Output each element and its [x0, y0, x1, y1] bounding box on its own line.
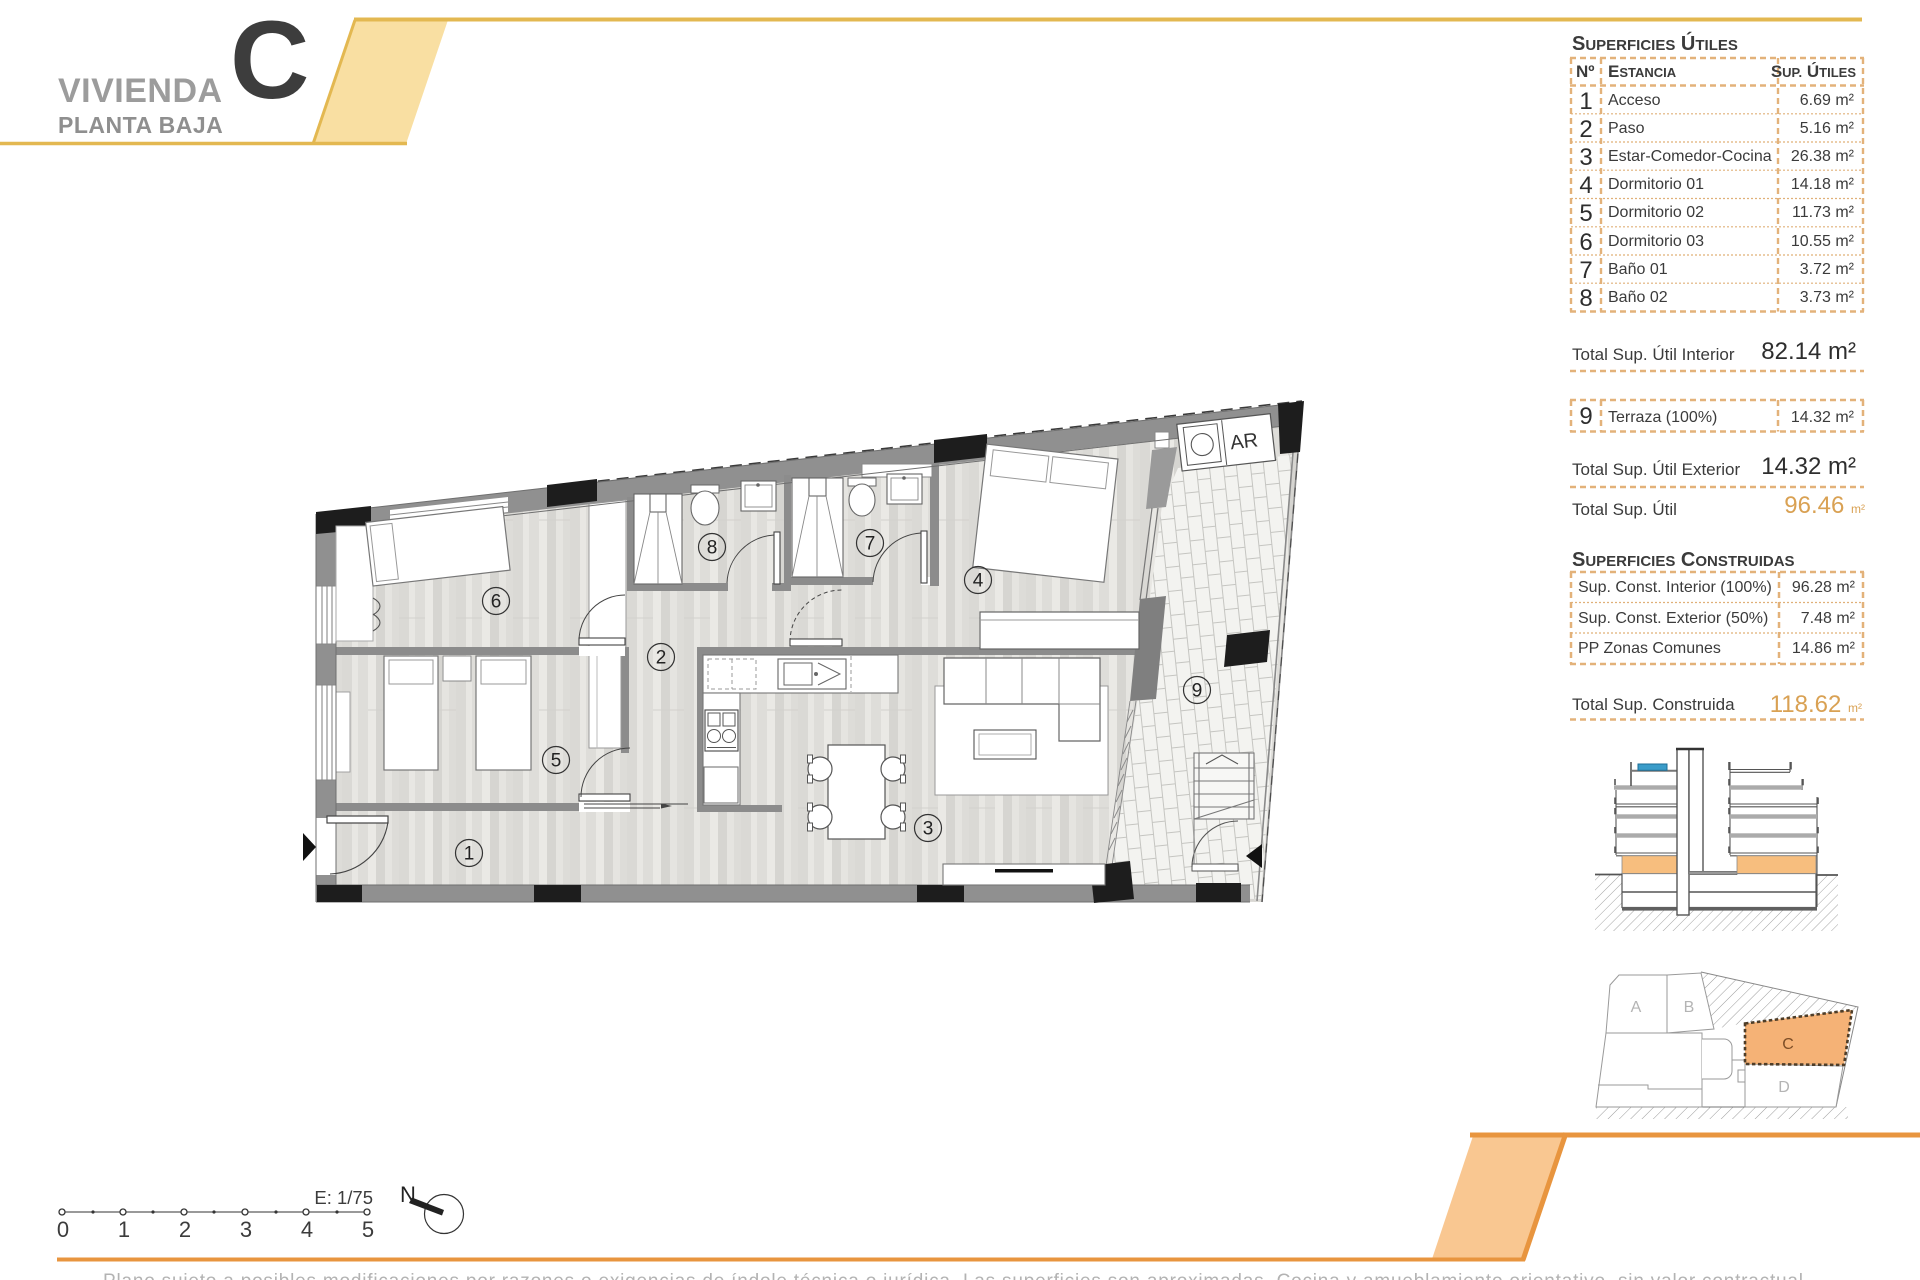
svg-text:N: N — [400, 1182, 416, 1207]
svg-text:8: 8 — [707, 538, 718, 559]
svg-text:6: 6 — [491, 592, 502, 613]
svg-text:1: 1 — [118, 1217, 130, 1242]
svg-text:1: 1 — [464, 844, 475, 865]
svg-text:A: A — [1631, 999, 1642, 1016]
svg-text:AR: AR — [1229, 429, 1259, 454]
svg-text:4: 4 — [973, 571, 984, 592]
svg-text:5: 5 — [362, 1217, 374, 1242]
svg-text:E: 1/75: E: 1/75 — [314, 1187, 373, 1208]
svg-text:2: 2 — [179, 1217, 191, 1242]
svg-text:4: 4 — [301, 1217, 313, 1242]
svg-text:3: 3 — [240, 1217, 252, 1242]
svg-text:9: 9 — [1192, 681, 1203, 702]
svg-text:D: D — [1778, 1079, 1790, 1096]
svg-text:3: 3 — [923, 819, 934, 840]
svg-text:7: 7 — [865, 534, 876, 555]
svg-text:5: 5 — [551, 751, 562, 772]
svg-text:0: 0 — [57, 1217, 69, 1242]
svg-text:C: C — [1782, 1036, 1794, 1053]
svg-text:B: B — [1684, 999, 1695, 1016]
svg-text:2: 2 — [656, 648, 667, 669]
